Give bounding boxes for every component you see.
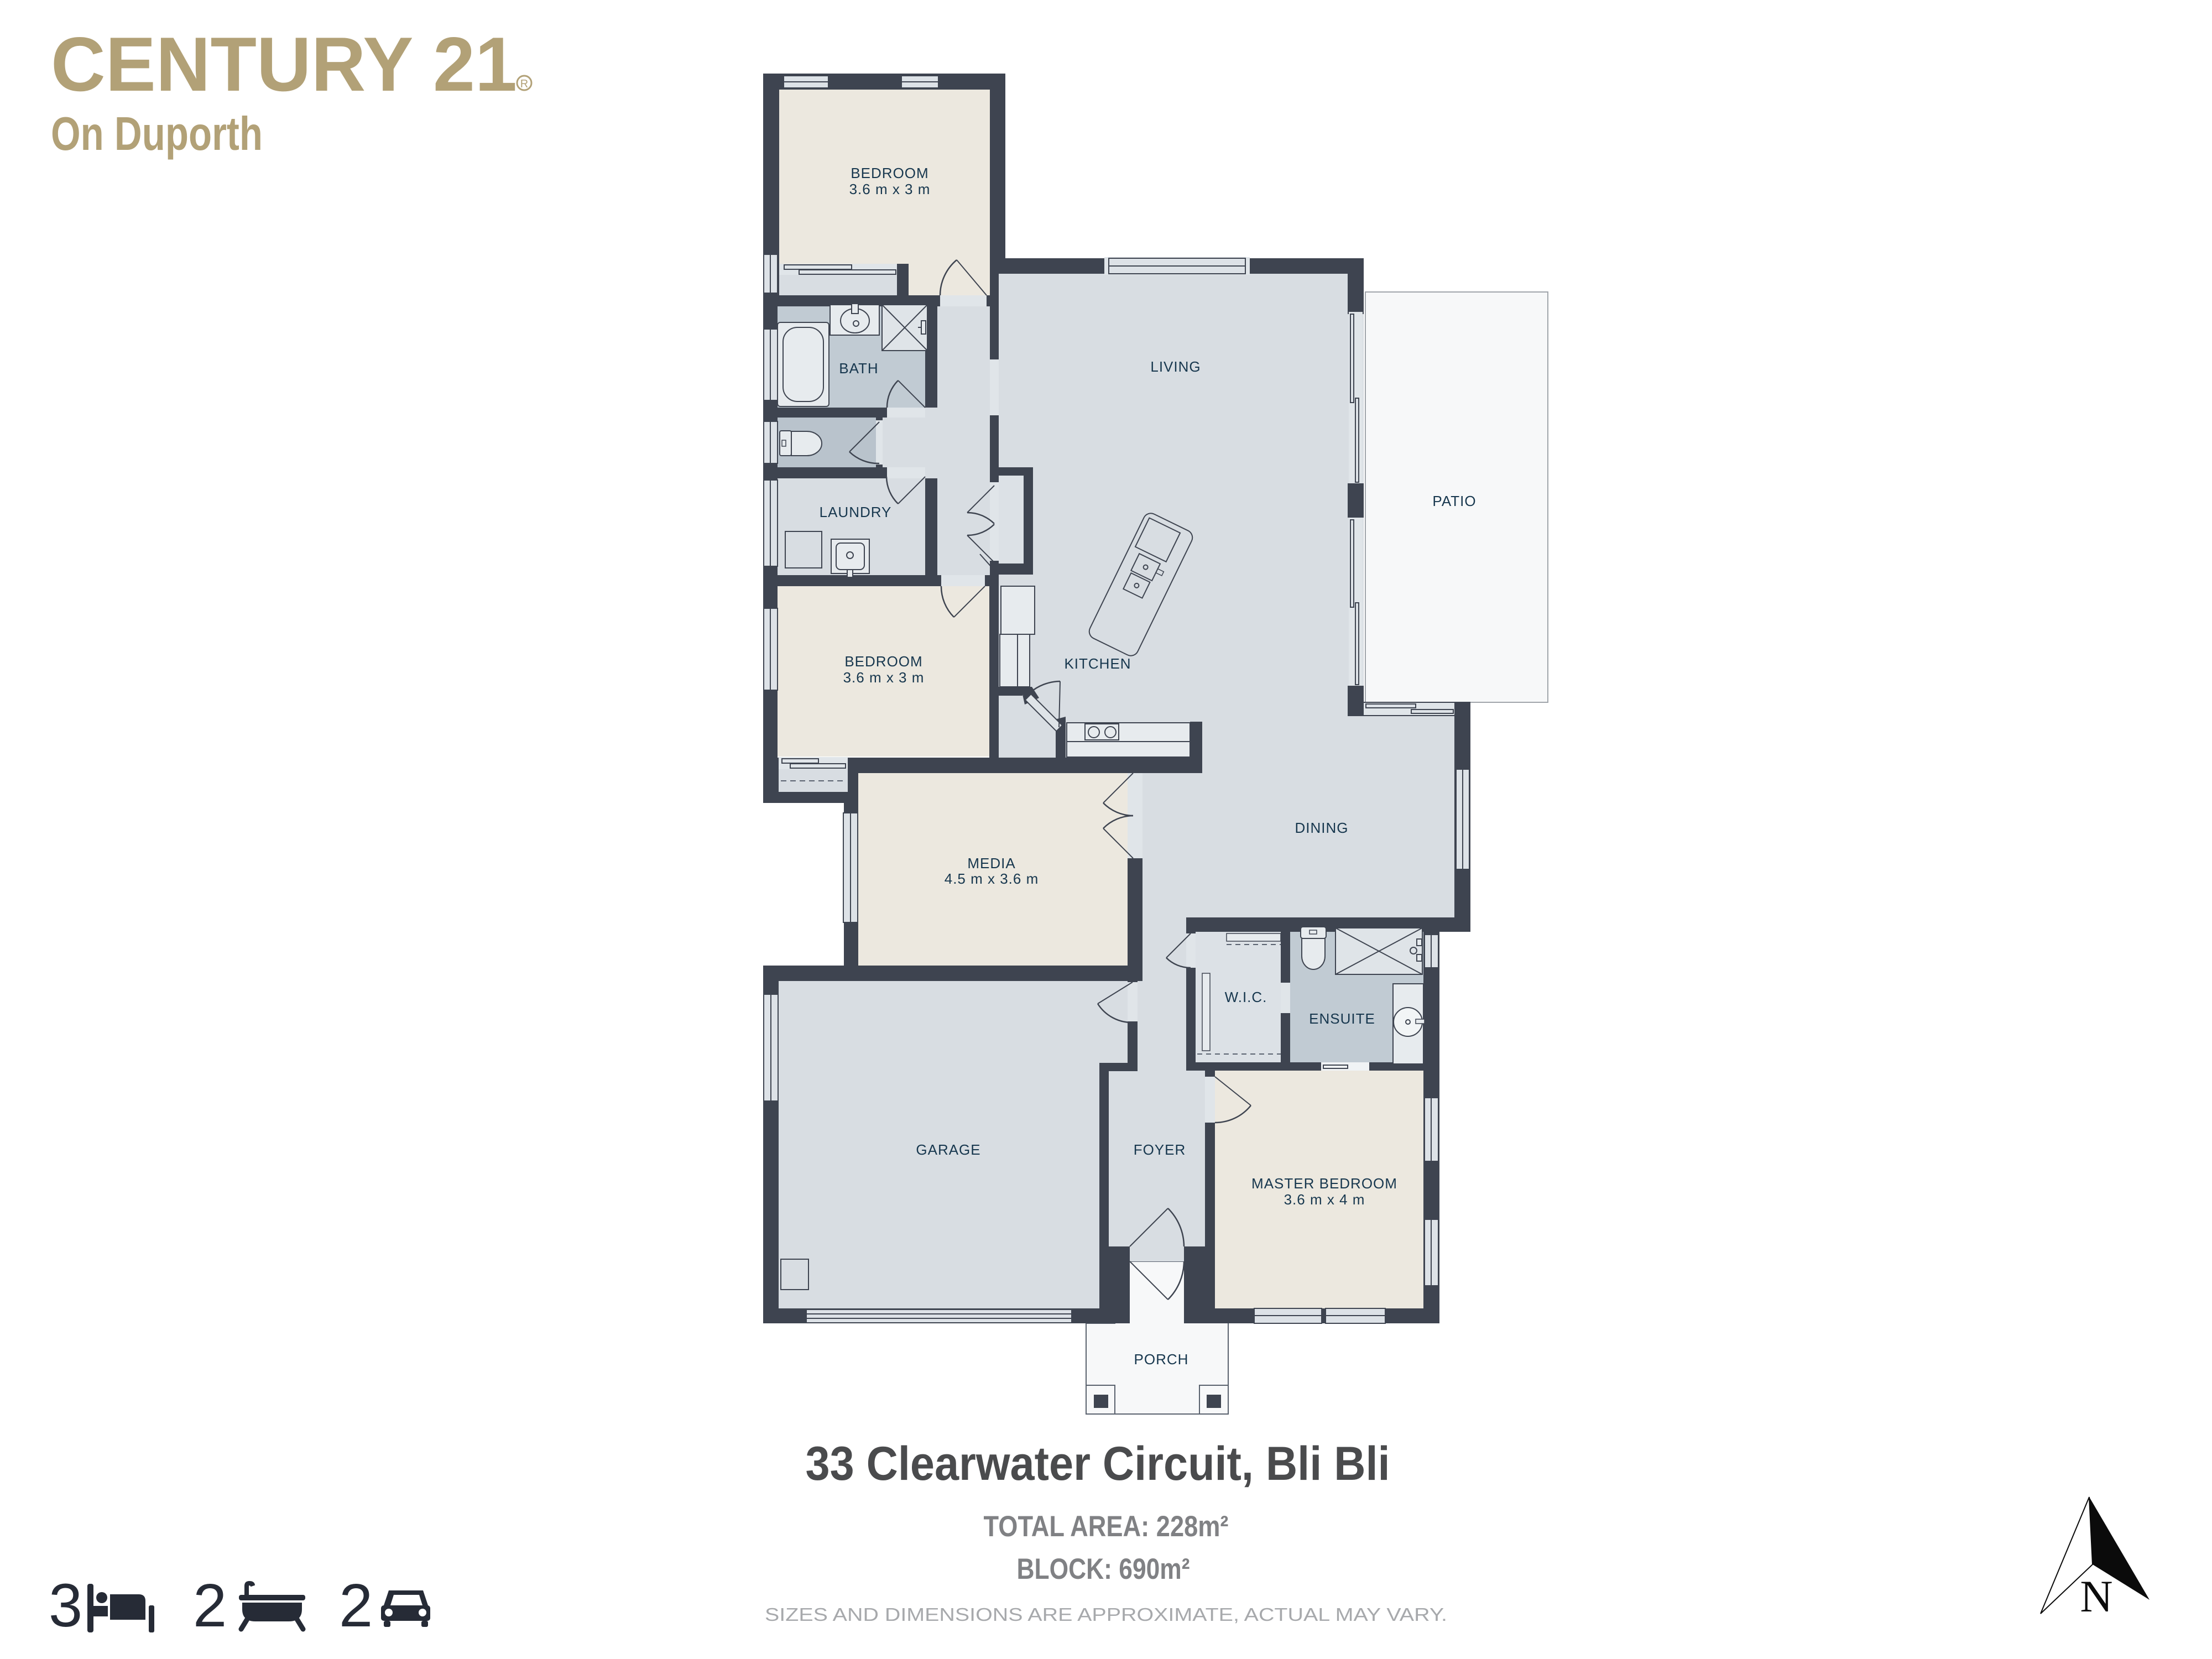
svg-text:GARAGE: GARAGE [916,1141,980,1158]
svg-text:BEDROOM: BEDROOM [851,165,928,181]
svg-text:N: N [2080,1571,2112,1621]
svg-text:MEDIA: MEDIA [967,855,1015,872]
svg-text:R: R [520,78,528,90]
svg-text:LIVING: LIVING [1150,358,1201,375]
svg-text:PORCH: PORCH [1134,1351,1189,1368]
svg-text:On Duporth: On Duporth [51,108,263,160]
svg-text:33 Clearwater Circuit, Bli Bli: 33 Clearwater Circuit, Bli Bli [806,1437,1390,1490]
svg-text:3.6 m x 4 m: 3.6 m x 4 m [1284,1191,1365,1208]
svg-text:BEDROOM: BEDROOM [844,653,922,670]
svg-text:FOYER: FOYER [1134,1141,1186,1158]
svg-text:DINING: DINING [1295,820,1349,836]
svg-text:3: 3 [49,1572,82,1640]
svg-text:2: 2 [339,1572,373,1640]
svg-text:W.I.C.: W.I.C. [1225,989,1267,1005]
svg-text:LAUNDRY: LAUNDRY [820,504,892,520]
svg-text:MASTER BEDROOM: MASTER BEDROOM [1251,1175,1397,1192]
svg-text:TOTAL AREA: 228m²: TOTAL AREA: 228m² [984,1510,1229,1543]
svg-text:3.6 m x 3 m: 3.6 m x 3 m [843,669,925,686]
svg-text:BATH: BATH [839,360,878,377]
svg-text:KITCHEN: KITCHEN [1064,655,1131,672]
svg-text:CENTURY 21: CENTURY 21 [51,22,517,107]
svg-text:PATIO: PATIO [1432,493,1476,509]
svg-text:3.6 m x 3 m: 3.6 m x 3 m [849,181,931,197]
svg-text:SIZES AND DIMENSIONS ARE APPRO: SIZES AND DIMENSIONS ARE APPROXIMATE, AC… [765,1604,1447,1625]
svg-text:ENSUITE: ENSUITE [1309,1010,1375,1027]
svg-text:4.5 m x 3.6 m: 4.5 m x 3.6 m [945,870,1039,887]
svg-text:BLOCK: 690m²: BLOCK: 690m² [1017,1553,1190,1585]
svg-text:2: 2 [193,1572,227,1640]
